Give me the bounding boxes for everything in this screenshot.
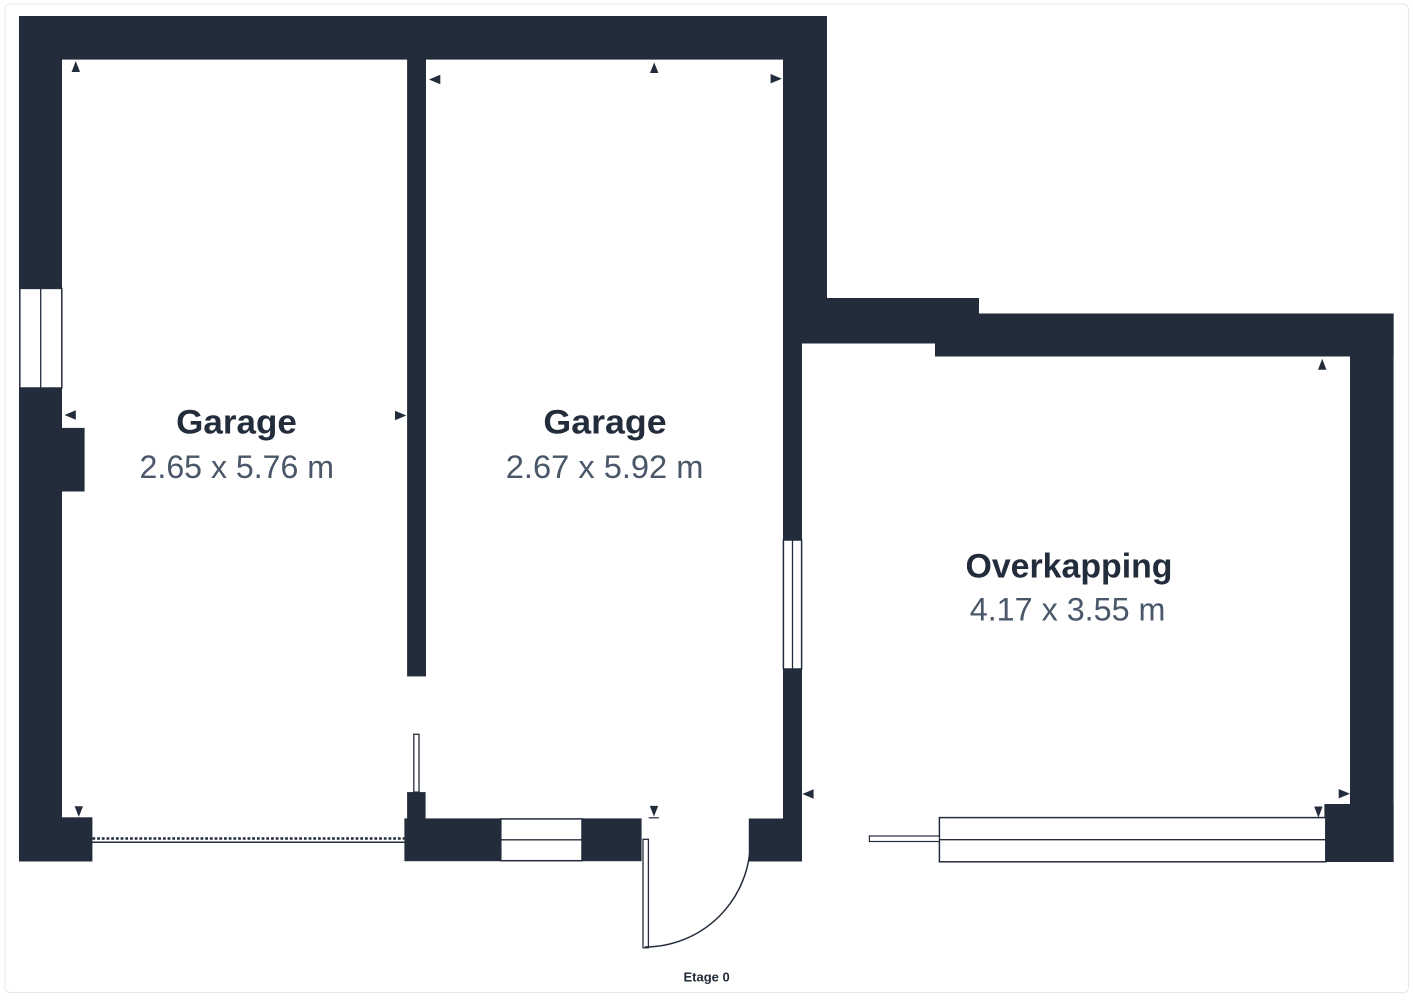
svg-text:Etage 0: Etage 0 bbox=[683, 969, 729, 984]
svg-text:Garage: Garage bbox=[176, 404, 297, 442]
svg-text:2.65 x 5.76 m: 2.65 x 5.76 m bbox=[140, 449, 335, 485]
svg-text:Garage: Garage bbox=[543, 404, 666, 442]
svg-text:4.17 x 3.55 m: 4.17 x 3.55 m bbox=[970, 592, 1166, 628]
svg-text:2.67 x 5.92 m: 2.67 x 5.92 m bbox=[506, 449, 704, 485]
svg-text:Overkapping: Overkapping bbox=[966, 548, 1173, 586]
